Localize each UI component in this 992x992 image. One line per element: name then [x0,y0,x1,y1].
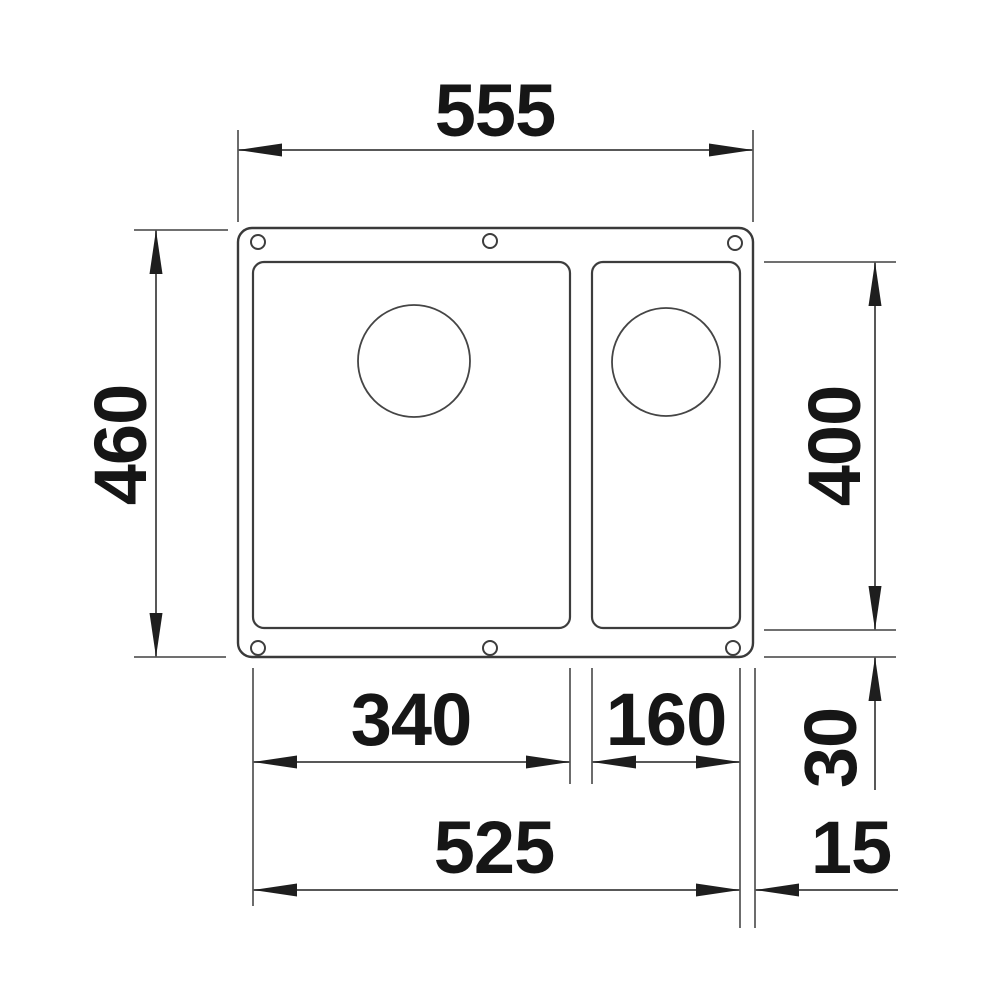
mounting-hole-top-right [728,236,742,250]
main-bowl-drain-hole [358,305,470,417]
half-bowl-drain-hole [612,308,720,416]
sink-outline [238,228,753,657]
arrowhead-down [869,586,882,630]
sink-dimension-drawing: 555 460 400 30 [0,0,992,992]
drawing-svg: 555 460 400 30 [0,0,992,992]
overall-width-label: 555 [435,69,555,152]
dimension-edge-gap: 15 [755,668,898,928]
dimension-bowl-depth: 400 [764,262,896,630]
arrowhead-up [150,230,163,274]
sink-body [238,228,753,657]
arrowhead-left [253,756,297,769]
mounting-hole-top-left [251,235,265,249]
dimension-overall-depth: 460 [79,230,228,657]
main-bowl [253,262,570,628]
edge-gap-label: 15 [811,806,891,889]
main-bowl-width-label: 340 [351,678,471,761]
arrowhead-left [253,884,297,897]
arrowhead-right [526,756,570,769]
mounting-hole-bottom-center [483,641,497,655]
arrowhead-down [150,613,163,657]
dimension-bottom-rim: 30 [764,657,896,790]
mounting-hole-top-center [483,234,497,248]
dimension-cutout-width: 525 [253,806,740,897]
arrowhead-right [696,884,740,897]
bottom-rim-label: 30 [789,708,872,788]
overall-depth-label: 460 [79,385,162,505]
dimension-overall-width: 555 [238,69,753,222]
cutout-width-label: 525 [434,806,554,889]
arrowhead-up [869,657,882,701]
bowl-depth-label: 400 [793,386,876,506]
arrowhead-left [755,884,799,897]
half-bowl-width-label: 160 [606,678,726,761]
arrowhead-right [709,144,753,157]
arrowhead-up [869,262,882,306]
arrowhead-left [238,144,282,157]
mounting-hole-bottom-right [726,641,740,655]
mounting-hole-bottom-left [251,641,265,655]
half-bowl [592,262,740,628]
